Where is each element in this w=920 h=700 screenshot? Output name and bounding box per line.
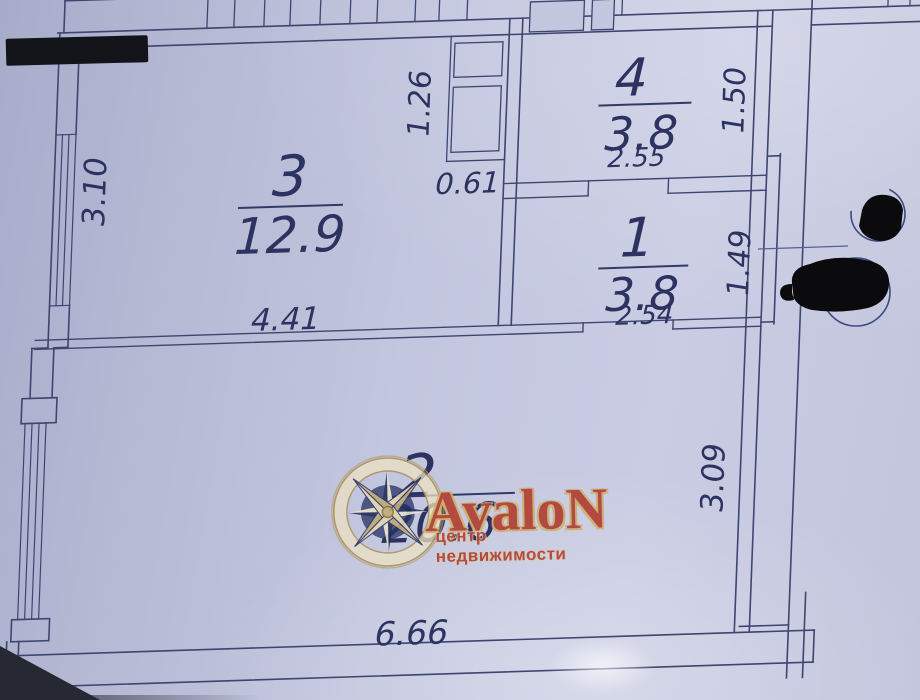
top-duct-box-2 bbox=[591, 0, 614, 30]
wall-room4-room1 bbox=[503, 175, 767, 198]
room3-area: 12.9 bbox=[233, 209, 346, 263]
window-room2 bbox=[18, 423, 46, 620]
floor-plan: 3 12.9 4.41 3.10 1.26 0.61 4 3.8 2.55 1.… bbox=[0, 0, 920, 700]
room2-height-dim: 3.09 bbox=[697, 442, 731, 512]
watermark-tagline: центр недвижимости bbox=[435, 524, 566, 567]
vent-shaft bbox=[447, 35, 510, 162]
room3-height-dim: 3.10 bbox=[79, 157, 113, 227]
room3-number: 3 bbox=[271, 149, 309, 206]
black-marker-redaction bbox=[6, 35, 149, 66]
dimension-leader-line bbox=[758, 246, 848, 249]
left-wall-room3 bbox=[30, 32, 80, 398]
floorplan-photo: 3 12.9 4.41 3.10 1.26 0.61 4 3.8 2.55 1.… bbox=[0, 0, 920, 700]
shaft-width-dim: 0.61 bbox=[435, 168, 501, 199]
room4-number: 4 bbox=[614, 52, 649, 105]
room1-width-dim: 2.54 bbox=[615, 302, 674, 330]
redaction-blob-bottom bbox=[780, 258, 889, 312]
photo-edge-shadow bbox=[0, 695, 260, 700]
room4-width-dim: 2.55 bbox=[607, 144, 666, 172]
redaction-blob-top bbox=[859, 195, 903, 241]
room1-number: 1 bbox=[619, 211, 655, 266]
room2-width-dim: 6.66 bbox=[374, 615, 449, 650]
top-strip bbox=[58, 0, 920, 33]
light-reflection bbox=[548, 638, 658, 694]
room4-height-dim: 1.50 bbox=[719, 66, 752, 134]
shaft-height-dim: 1.26 bbox=[404, 69, 437, 137]
redacted-stamp bbox=[740, 180, 920, 340]
room3-width-dim: 4.41 bbox=[251, 304, 321, 337]
floor-plan-drawing bbox=[0, 0, 920, 700]
top-duct-box-1 bbox=[529, 0, 584, 32]
left-wall-room2 bbox=[5, 398, 58, 688]
